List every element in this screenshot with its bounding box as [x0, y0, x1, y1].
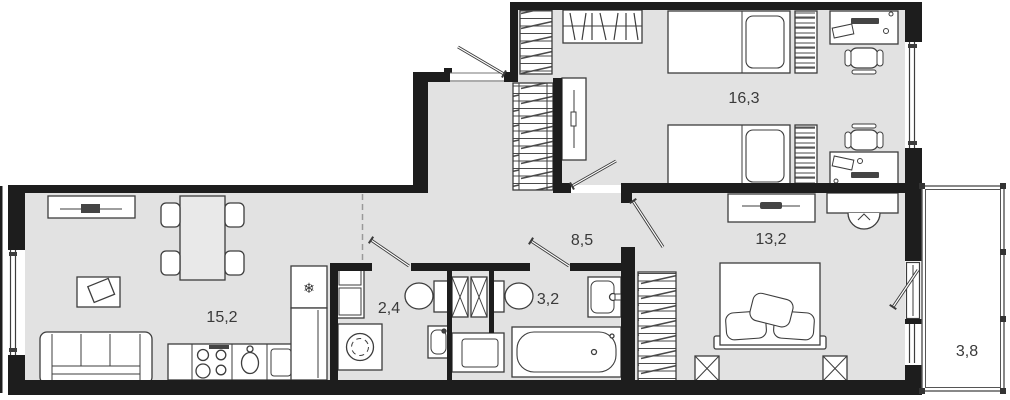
- balcony-post: [919, 183, 925, 189]
- wall: [905, 148, 922, 261]
- desk: [830, 11, 898, 44]
- double-bed: [714, 263, 826, 349]
- wall: [8, 380, 922, 395]
- nightstand-icon: [695, 356, 719, 381]
- wall: [413, 72, 428, 193]
- wall: [447, 271, 452, 380]
- label-bedroom-children: 16,3: [728, 90, 759, 107]
- wardrobe: [520, 10, 552, 74]
- dresser: [728, 194, 815, 222]
- shelf-unit: [795, 11, 817, 73]
- wall: [621, 183, 905, 193]
- adjacent-wall-line: [0, 186, 3, 393]
- vent-shaft-icon: [452, 277, 468, 317]
- wall: [553, 183, 571, 193]
- desk: [830, 152, 898, 185]
- wc-shelving-box: [339, 288, 361, 315]
- wall: [444, 68, 452, 73]
- floor-plan-drawing: ❄: [0, 0, 1010, 400]
- wall: [621, 193, 632, 203]
- balcony-post: [1000, 249, 1006, 255]
- dining-table: [180, 196, 225, 280]
- wall: [428, 72, 450, 82]
- washing-machine-icon: [338, 324, 382, 370]
- fridge-snowflake-icon: ❄: [303, 281, 315, 297]
- washbasin-icon: [588, 277, 621, 317]
- floor-plan-canvas: ❄: [0, 0, 1010, 400]
- toilet-icon: [490, 281, 533, 312]
- wall: [330, 263, 338, 380]
- bed-single: [668, 125, 790, 187]
- wall: [489, 271, 494, 333]
- label-living-kitchen: 15,2: [206, 309, 237, 326]
- wc-shelving-box: [339, 270, 361, 285]
- sofa: [40, 332, 152, 384]
- vent-shaft-icon: [471, 277, 487, 317]
- wardrobe: [638, 272, 676, 381]
- wc-small-sink-icon: [428, 326, 449, 358]
- label-balcony: 3,8: [956, 343, 978, 360]
- window-living-room: [8, 250, 25, 355]
- wall: [8, 186, 25, 250]
- dining-chair: [161, 251, 180, 275]
- label-bedroom-master: 13,2: [755, 231, 786, 248]
- hanger-rack-icon: [563, 10, 642, 43]
- bath-cabinet: [452, 333, 504, 372]
- balcony-structure: [919, 183, 1006, 394]
- balcony-post: [1000, 316, 1006, 322]
- dishwasher: [271, 349, 291, 376]
- nightstand-icon: [823, 356, 847, 381]
- label-wc-laundry: 2,4: [378, 300, 400, 317]
- dining-chair: [225, 251, 244, 275]
- tall-cabinet-handle: [571, 112, 576, 126]
- shelf-unit: [795, 125, 817, 187]
- label-hallway: 8,5: [571, 232, 593, 249]
- wall: [570, 263, 635, 271]
- bed-single: [668, 11, 790, 73]
- wall: [411, 263, 530, 271]
- room-hallway: [513, 83, 553, 190]
- dining-chair: [225, 203, 244, 227]
- bathtub-icon: [512, 327, 621, 377]
- wall: [510, 2, 518, 78]
- tv-icon: [81, 204, 100, 213]
- wall: [905, 2, 922, 42]
- desk: [827, 193, 898, 213]
- toilet-icon: [405, 281, 448, 312]
- dining-chair: [161, 203, 180, 227]
- label-bathroom: 3,2: [537, 291, 559, 308]
- wall: [553, 78, 562, 183]
- balcony-post: [1000, 388, 1006, 394]
- balcony-post: [1000, 183, 1006, 189]
- window-bedroom-children: [905, 42, 922, 148]
- kitchen-corner-unit: [291, 308, 327, 380]
- balcony-post: [919, 388, 925, 394]
- wall: [510, 2, 922, 10]
- wall: [8, 185, 428, 193]
